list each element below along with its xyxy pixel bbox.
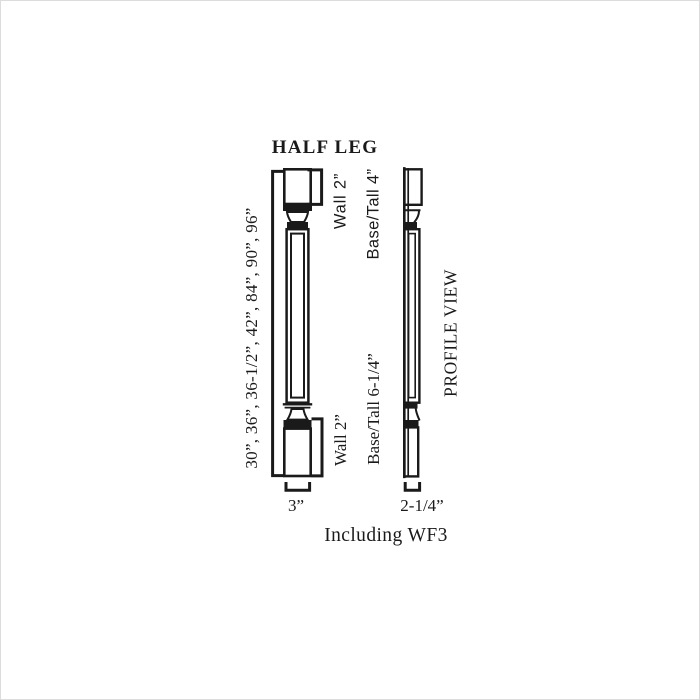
front-bottom-section-label: Base/Tall 6-1/4”: [364, 353, 384, 465]
front-heights-label: 30”, 36”, 36-1/2”, 42”, 84”, 90”, 96”: [242, 207, 262, 468]
profile-top-neck-curve: [415, 211, 420, 222]
front-top-block-label: Wall 2”: [332, 173, 351, 229]
profile-lower-band: [404, 403, 418, 409]
front-height-bracket: [273, 171, 283, 475]
profile-view-drawing: [404, 168, 422, 490]
profile-shaft: [404, 229, 419, 403]
front-shaft: [287, 229, 309, 403]
front-top-block: [284, 169, 310, 204]
profile-bottom-neck-curve: [416, 409, 419, 420]
diagram-canvas: HALF LEG 30”, 36”, 36-1/2”, 42”, 84”, 90…: [0, 0, 700, 700]
profile-top-block: [404, 169, 421, 205]
front-bottom-block-label: Wall 2”: [331, 414, 351, 466]
front-width-bracket: [286, 484, 310, 491]
front-width-dimension: 3”: [288, 496, 304, 516]
diagram-title: HALF LEG: [272, 137, 379, 159]
profile-view-label: PROFILE VIEW: [441, 269, 462, 397]
profile-bottom-block: [404, 427, 418, 476]
leg-linework: [0, 0, 700, 700]
front-view-drawing: [273, 169, 322, 490]
front-top-neck: [287, 212, 308, 222]
front-bottom-band: [284, 420, 312, 428]
front-neck-band: [287, 222, 308, 229]
profile-neck-band: [404, 222, 417, 229]
profile-depth-bracket: [405, 484, 419, 491]
front-bottom-block: [284, 429, 310, 476]
footnote: Including WF3: [324, 525, 447, 547]
profile-depth-dimension: 2-1/4”: [400, 496, 443, 516]
front-bottom-neck: [287, 409, 307, 420]
front-top-section-label: Base/Tall 4”: [365, 168, 384, 259]
profile-bottom-band: [404, 420, 419, 427]
front-bottom-block-bracket: [313, 419, 322, 476]
